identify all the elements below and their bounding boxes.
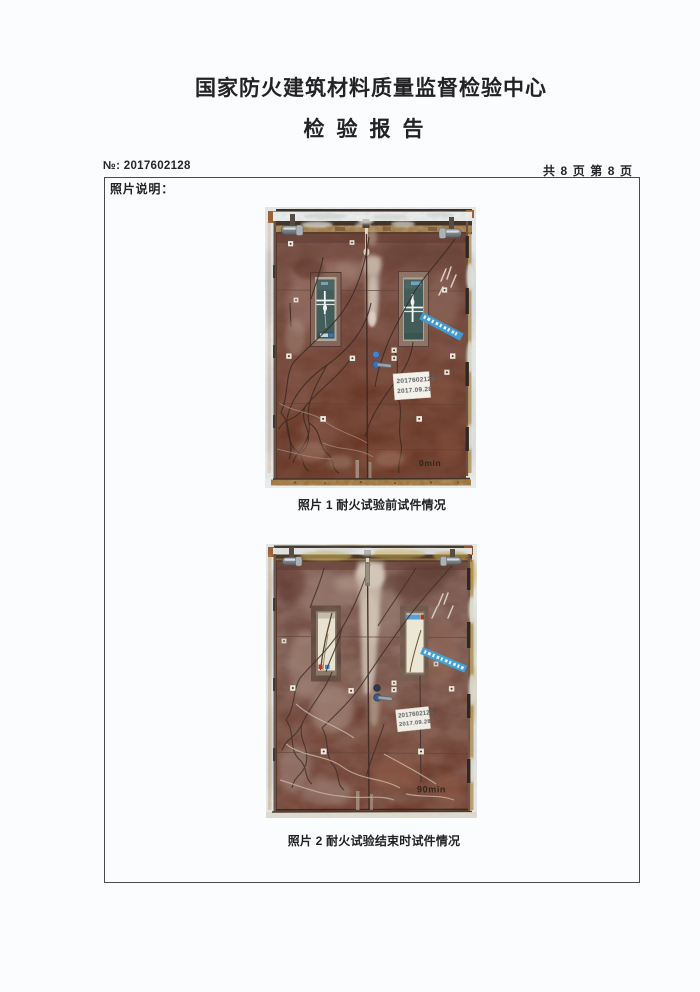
svg-text:90min: 90min [417,785,446,795]
svg-text:0min: 0min [419,458,441,468]
